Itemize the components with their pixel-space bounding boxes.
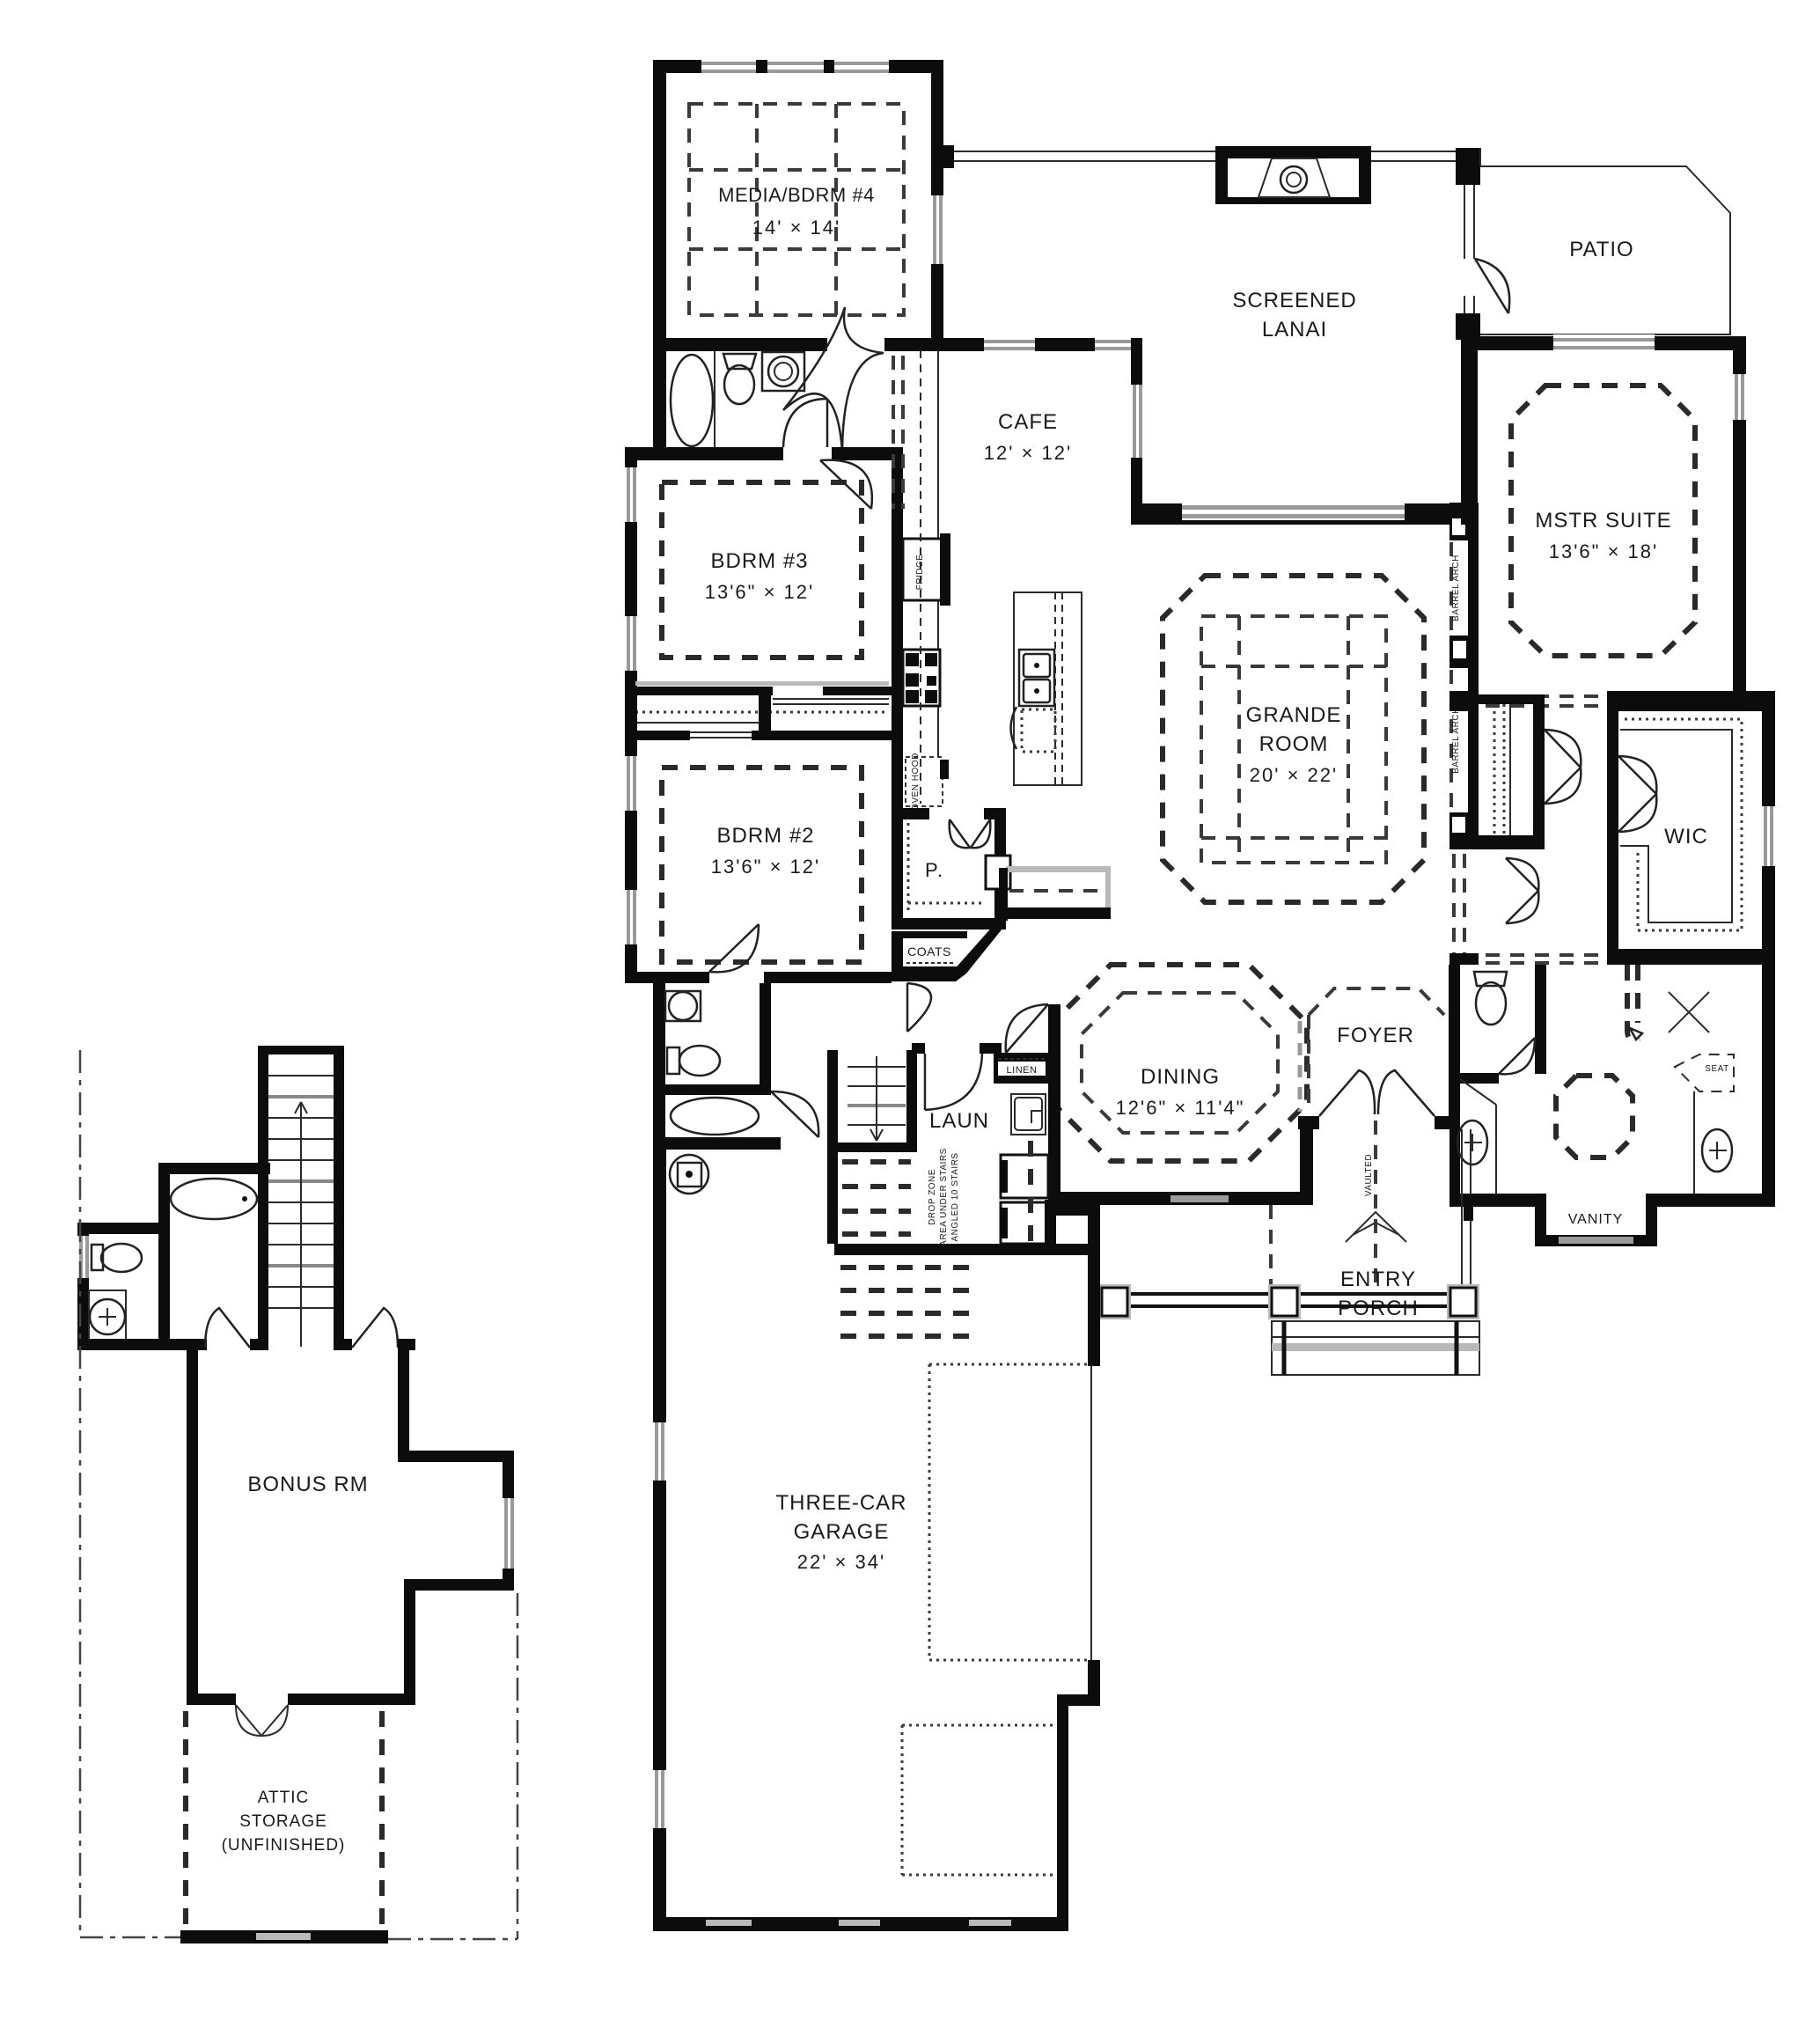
svg-text:13'6" × 12': 13'6" × 12' [711, 856, 820, 878]
svg-text:COATS: COATS [907, 944, 951, 959]
svg-text:14' × 14': 14' × 14' [752, 217, 840, 239]
svg-text:ENTRY: ENTRY [1340, 1267, 1416, 1291]
svg-text:CAFE: CAFE [998, 410, 1058, 434]
svg-text:PORCH: PORCH [1338, 1297, 1419, 1320]
svg-text:VAULTED: VAULTED [1364, 1154, 1374, 1196]
svg-text:ROOM: ROOM [1259, 732, 1329, 756]
svg-text:LANAI: LANAI [1262, 318, 1327, 342]
svg-text:FOYER: FOYER [1337, 1024, 1414, 1047]
svg-text:(UNFINISHED): (UNFINISHED) [222, 1836, 346, 1855]
svg-text:SCREENED: SCREENED [1232, 289, 1356, 312]
svg-text:ATTIC: ATTIC [258, 1789, 309, 1807]
svg-text:BARREL ARCH: BARREL ARCH [1451, 707, 1461, 774]
svg-text:PATIO: PATIO [1569, 238, 1633, 261]
svg-text:BDRM #3: BDRM #3 [710, 549, 808, 573]
svg-text:VANITY: VANITY [1568, 1212, 1624, 1227]
svg-text:GRANDE: GRANDE [1246, 703, 1342, 727]
svg-text:GARAGE: GARAGE [794, 1520, 890, 1544]
svg-text:SEAT: SEAT [1705, 1064, 1728, 1074]
svg-text:WIC: WIC [1664, 825, 1708, 849]
svg-text:LINEN: LINEN [1007, 1065, 1038, 1076]
svg-text:13'6" × 12': 13'6" × 12' [705, 581, 814, 603]
svg-text:P.: P. [925, 859, 944, 881]
svg-text:OVEN HOOD: OVEN HOOD [911, 753, 921, 811]
svg-text:BARREL ARCH: BARREL ARCH [1451, 555, 1461, 621]
svg-text:BONUS RM: BONUS RM [247, 1473, 368, 1496]
svg-text:BDRM #2: BDRM #2 [716, 824, 814, 848]
svg-text:12' × 12': 12' × 12' [984, 442, 1072, 464]
svg-text:STORAGE: STORAGE [239, 1812, 327, 1831]
svg-text:MEDIA/BDRM #4: MEDIA/BDRM #4 [718, 184, 875, 206]
svg-text:FRIDGE: FRIDGE [915, 555, 925, 591]
svg-text:DROP ZONE: DROP ZONE [928, 1169, 937, 1225]
svg-text:MSTR SUITE: MSTR SUITE [1535, 509, 1671, 533]
svg-text:DINING: DINING [1141, 1065, 1220, 1089]
svg-text:22' × 34': 22' × 34' [797, 1551, 885, 1573]
svg-text:LAUN: LAUN [929, 1109, 989, 1133]
svg-text:THREE-CAR: THREE-CAR [775, 1491, 906, 1515]
svg-text:12'6" × 11'4": 12'6" × 11'4" [1116, 1097, 1245, 1119]
svg-text:20' × 22': 20' × 22' [1250, 764, 1338, 786]
svg-text:AREA UNDER STAIRS: AREA UNDER STAIRS [939, 1148, 949, 1246]
svg-text:13'6" × 18': 13'6" × 18' [1549, 540, 1658, 562]
svg-text:ANGLED 10 STAIRS: ANGLED 10 STAIRS [950, 1152, 960, 1241]
